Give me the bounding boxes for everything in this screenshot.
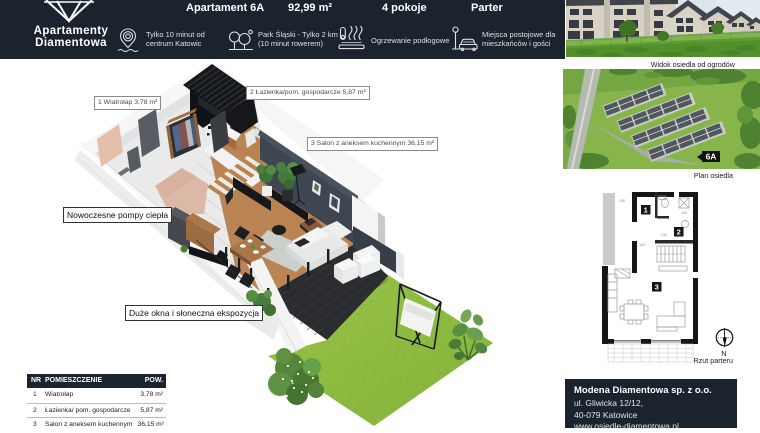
svg-text:142: 142 bbox=[639, 242, 646, 247]
svg-text:1: 1 bbox=[644, 206, 648, 215]
svg-text:190: 190 bbox=[619, 199, 625, 203]
svg-text:240: 240 bbox=[661, 233, 667, 237]
svg-text:190: 190 bbox=[681, 211, 687, 215]
svg-text:6A: 6A bbox=[706, 152, 717, 162]
svg-text:3: 3 bbox=[655, 283, 659, 292]
svg-text:2: 2 bbox=[677, 228, 681, 237]
